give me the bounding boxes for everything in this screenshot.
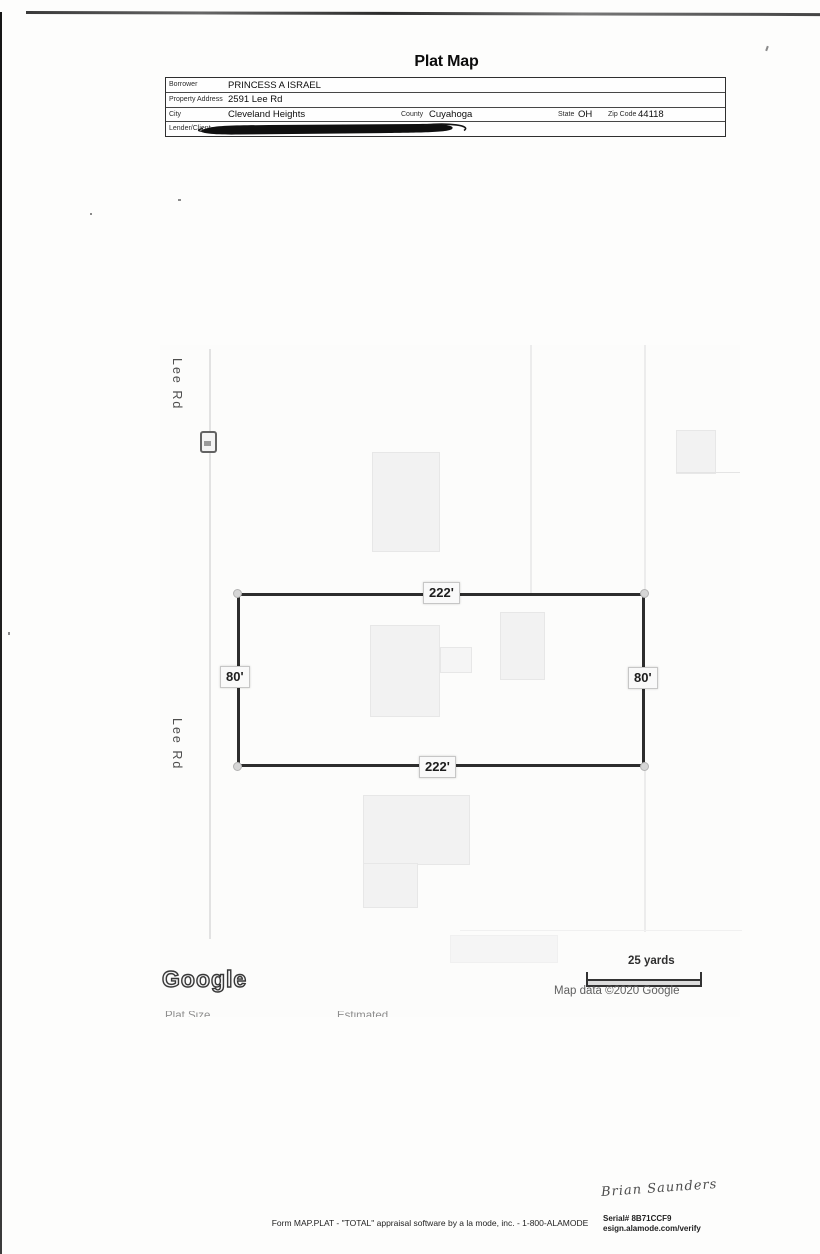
scan-speck	[90, 213, 92, 215]
building-edge	[676, 472, 740, 473]
parcel-corner-marker	[640, 589, 649, 598]
property-address-label: Property Address	[169, 96, 223, 103]
map-attribution: Map data ©2020 Google	[554, 985, 679, 997]
table-row-city-county-state-zip: City Cleveland Heights County Cuyahoga S…	[166, 108, 725, 123]
page-title: Plat Map	[165, 53, 728, 71]
city-label: City	[169, 111, 181, 118]
scanned-plat-map-page: Plat Map Borrower PRINCESS A ISRAEL Prop…	[0, 0, 820, 1254]
street-label-lee-rd-top: Lee Rd	[170, 358, 184, 410]
footer-serial-block: Serial# 8B71CCF9 esign.alamode.com/verif…	[603, 1214, 701, 1235]
building-footprint	[372, 452, 440, 552]
scan-edge-left	[0, 12, 2, 1254]
county-value: Cuyahoga	[429, 109, 472, 120]
clipped-caption: Plat Size Estimated	[165, 1011, 585, 1017]
lot-line	[460, 930, 742, 931]
building-footprint	[363, 795, 470, 865]
scan-speck	[8, 632, 10, 635]
borrower-value: PRINCESS A ISRAEL	[228, 80, 321, 91]
zip-code-label: Zip Code	[608, 111, 636, 118]
scan-speck	[178, 199, 181, 201]
subject-parcel-outline	[237, 593, 645, 767]
google-logo: Google	[162, 966, 247, 993]
borrower-label: Borrower	[169, 81, 197, 88]
lot-line	[530, 345, 532, 593]
table-row-borrower: Borrower PRINCESS A ISRAEL	[166, 78, 725, 93]
table-row-lender-client: Lender/Client	[166, 122, 725, 136]
esign-verify-url: esign.alamode.com/verify	[603, 1224, 701, 1234]
clipped-caption-right: Estimated	[337, 1011, 388, 1017]
parcel-corner-marker	[233, 589, 242, 598]
lender-redaction-scribble	[194, 122, 479, 136]
state-label: State	[558, 111, 574, 118]
county-label: County	[401, 111, 423, 118]
dimension-label-top: 222'	[423, 582, 460, 604]
building-footprint	[363, 863, 418, 908]
dimension-label-left: 80'	[220, 666, 250, 688]
state-value: OH	[578, 109, 592, 120]
scan-edge-top	[26, 11, 820, 16]
map-scale-label: 25 yards	[628, 955, 675, 967]
transit-stop-icon-glyph	[204, 441, 211, 446]
building-footprint	[450, 935, 558, 963]
lot-line	[644, 345, 646, 593]
dimension-label-right: 80'	[628, 667, 658, 689]
serial-number: Serial# 8B71CCF9	[603, 1214, 701, 1224]
plat-map-image: Lee Rd Lee Rd 222' 222' 80' 80' Google 2…	[160, 345, 740, 1017]
scan-speck	[765, 46, 769, 51]
clipped-caption-left: Plat Size	[165, 1011, 210, 1017]
lot-line	[644, 767, 646, 932]
parcel-corner-marker	[233, 762, 242, 771]
appraiser-signature: Brian Saunders	[601, 1177, 718, 1200]
zip-code-value: 44118	[638, 109, 664, 120]
street-label-lee-rd-bottom: Lee Rd	[170, 718, 184, 770]
building-footprint	[676, 430, 716, 474]
dimension-label-bottom: 222'	[419, 756, 456, 778]
transit-stop-icon	[200, 431, 217, 453]
parcel-corner-marker	[640, 762, 649, 771]
property-address-value: 2591 Lee Rd	[228, 94, 282, 105]
city-value: Cleveland Heights	[228, 109, 305, 120]
table-row-property-address: Property Address 2591 Lee Rd	[166, 93, 725, 108]
subject-info-table: Borrower PRINCESS A ISRAEL Property Addr…	[165, 77, 726, 137]
